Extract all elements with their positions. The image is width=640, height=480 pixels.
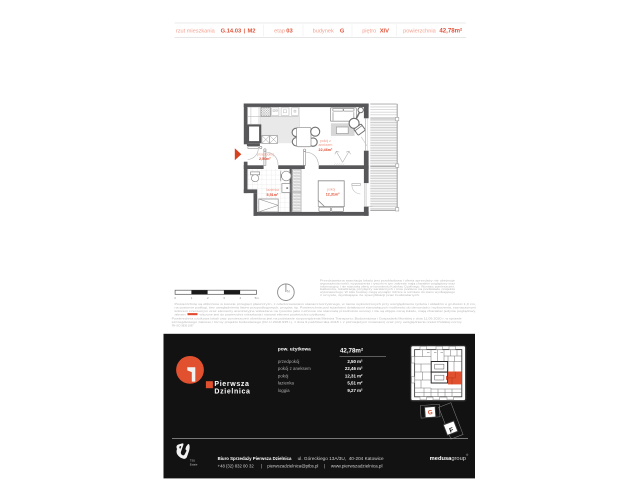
svg-text:pierwszadzielnica@ptbs.pl: pierwszadzielnica@ptbs.pl [267, 463, 318, 468]
svg-text:zakresem: zakresem [175, 312, 186, 316]
svg-text:42,78m²: 42,78m² [340, 347, 363, 354]
svg-text:5,51 m²: 5,51 m² [347, 381, 363, 386]
svg-text:|: | [324, 463, 325, 468]
svg-text:Dzielnica: Dzielnica [214, 389, 250, 396]
svg-text:+48 (32) 832 00 32: +48 (32) 832 00 32 [218, 463, 255, 468]
svg-text:pokój: pokój [278, 373, 289, 378]
svg-text:medusagroup: medusagroup [430, 456, 466, 462]
svg-text:pokój z aneksem: pokój z aneksem [278, 366, 311, 371]
svg-text:etap: etap [274, 28, 285, 34]
svg-text:G.14.03 | M2: G.14.03 | M2 [221, 29, 256, 35]
svg-text:loggia: loggia [278, 388, 290, 393]
svg-text:®: ® [466, 453, 468, 457]
svg-text:łazienka: łazienka [278, 381, 295, 386]
svg-text:PN-ISO 9836:1997: PN-ISO 9836:1997 [172, 323, 194, 327]
svg-text:9,27 m²: 9,27 m² [347, 388, 363, 393]
svg-text:5,51m²: 5,51m² [267, 193, 279, 197]
svg-text:|: | [261, 463, 262, 468]
svg-text:XIV: XIV [380, 29, 389, 35]
svg-text:42,78m²: 42,78m² [439, 28, 462, 35]
svg-text:G: G [340, 29, 345, 35]
svg-text:2,50 m²: 2,50 m² [347, 359, 363, 364]
svg-text:na poziomie podłogi, bez uwzgl: na poziomie podłogi, bez uwzględnienia l… [175, 305, 477, 309]
svg-text:G: G [428, 409, 433, 416]
svg-text:powierzchnia: powierzchnia [403, 28, 437, 34]
svg-text:12,31 m²: 12,31 m² [345, 373, 363, 378]
svg-text:pow. użytkowa: pow. użytkowa [278, 346, 311, 351]
svg-text:www.pierwszadzielnica.pl: www.pierwszadzielnica.pl [331, 463, 383, 468]
svg-text:z umysłu, wynikające ze specyf: z umysłu, wynikające ze specyfikacji pra… [320, 294, 420, 297]
svg-text:22,46m²: 22,46m² [319, 148, 334, 152]
svg-text:pokój: pokój [327, 188, 335, 192]
svg-text:Powierzchnia użytkowa lokali o: Powierzchnia użytkowa lokali oraz pomies… [172, 316, 463, 320]
svg-text:03: 03 [286, 29, 293, 35]
svg-text:12,31m²: 12,31m² [326, 192, 341, 196]
svg-text:2,50m²: 2,50m² [259, 157, 271, 161]
svg-text:aneksem: aneksem [319, 143, 333, 147]
svg-text:TSU: TSU [190, 458, 195, 462]
svg-text:budynek: budynek [313, 28, 334, 34]
svg-text:Biuro Sprzedaży Pierwsza Dziel: Biuro Sprzedaży Pierwsza Dzielnica [218, 456, 292, 461]
svg-text:rzut mieszkania: rzut mieszkania [176, 28, 216, 34]
svg-text:Pierwsza: Pierwsza [214, 381, 249, 388]
svg-text:N: N [287, 290, 290, 294]
svg-text:Powierzchnię są obliczone w kw: Powierzchnię są obliczone w kwocie przeg… [175, 302, 477, 306]
svg-text:piętro: piętro [362, 28, 376, 34]
svg-text:kolorem czerwonym oraz element: kolorem czerwonym oraz elementy aranżacy… [175, 309, 477, 313]
svg-text:5m: 5m [255, 296, 260, 300]
svg-text:ul. Góreckiego 13A/3U, 40-204: ul. Góreckiego 13A/3U, 40-204 Katowice [298, 456, 384, 461]
svg-text:wliczone jest do powierzchni m: wliczone jest do powierzchni mieszkania … [200, 312, 326, 316]
svg-text:łazienka: łazienka [266, 188, 279, 192]
svg-text:przedpokój: przedpokój [278, 359, 300, 364]
svg-text:Estate: Estate [190, 463, 198, 467]
svg-text:22,46 m²: 22,46 m² [345, 366, 363, 371]
svg-text:szczegółowego zakresu i formy: szczegółowego zakresu i formy projektu b… [172, 320, 463, 324]
